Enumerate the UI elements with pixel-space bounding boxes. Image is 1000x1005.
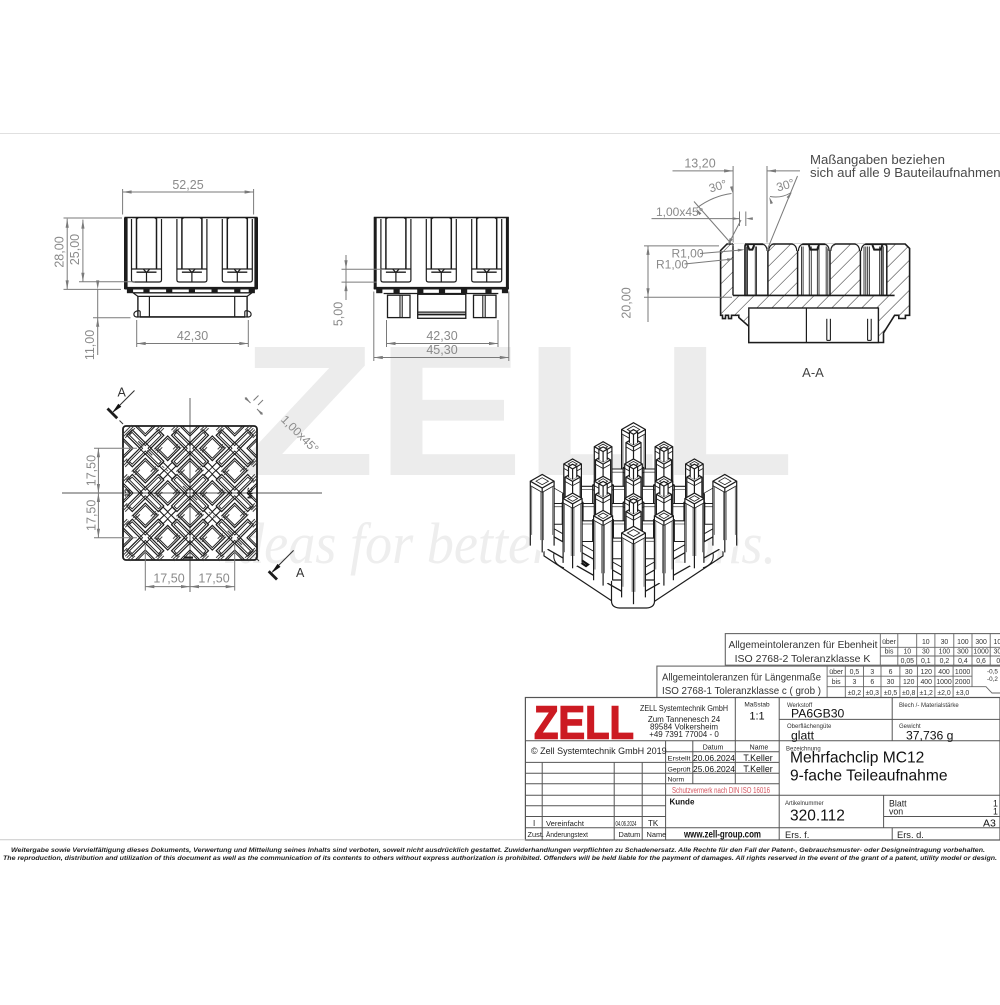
svg-text:30: 30 xyxy=(905,669,913,676)
svg-text:A3: A3 xyxy=(983,817,996,829)
svg-text:10: 10 xyxy=(922,639,930,646)
svg-text:A-A: A-A xyxy=(802,365,824,380)
svg-text:Schutzvermerk nach DIN ISO 160: Schutzvermerk nach DIN ISO 16016 xyxy=(672,786,770,795)
svg-text:+49 7391 77004 - 0: +49 7391 77004 - 0 xyxy=(649,730,719,739)
svg-text:400: 400 xyxy=(920,679,932,686)
svg-text:sich auf alle 9 Bauteilaufnahm: sich auf alle 9 Bauteilaufnahmen xyxy=(810,165,1000,180)
svg-text:±3,0: ±3,0 xyxy=(956,690,970,697)
svg-text:2000: 2000 xyxy=(955,679,970,686)
svg-text:0,05: 0,05 xyxy=(901,658,915,665)
svg-text:±0,5: ±0,5 xyxy=(884,690,898,697)
svg-text:11,00: 11,00 xyxy=(83,330,97,360)
svg-text:Weitergabe sowie Vervielfältig: Weitergabe sowie Vervielfältigung dieses… xyxy=(11,847,985,854)
svg-text:ISO 2768-2 Toleranzklasse K: ISO 2768-2 Toleranzklasse K xyxy=(735,653,871,665)
svg-text:30: 30 xyxy=(887,679,895,686)
svg-text:17,50: 17,50 xyxy=(153,572,184,586)
svg-text:Erstellt: Erstellt xyxy=(668,755,691,762)
svg-text:120: 120 xyxy=(920,669,932,676)
svg-text:5,00: 5,00 xyxy=(332,302,346,326)
svg-text:30: 30 xyxy=(922,649,930,656)
svg-text:25.06.2024: 25.06.2024 xyxy=(693,764,735,774)
svg-text:300: 300 xyxy=(975,639,987,646)
svg-text:Mehrfachclip MC12: Mehrfachclip MC12 xyxy=(790,750,924,767)
svg-text:ZELL Systemtechnik GmbH: ZELL Systemtechnik GmbH xyxy=(640,703,728,713)
svg-text:A: A xyxy=(118,386,127,400)
svg-text:20,00: 20,00 xyxy=(620,287,634,318)
svg-text:320.112: 320.112 xyxy=(790,808,845,825)
svg-text:Geprüft: Geprüft xyxy=(668,766,691,773)
svg-text:www.zell-group.com: www.zell-group.com xyxy=(683,830,761,841)
svg-text:45,30: 45,30 xyxy=(426,343,457,357)
svg-text:42,30: 42,30 xyxy=(426,329,457,343)
svg-text:±0,8: ±0,8 xyxy=(902,690,916,697)
svg-text:±1,2: ±1,2 xyxy=(920,690,934,697)
svg-text:04.06.2024: 04.06.2024 xyxy=(616,819,637,828)
svg-text:ISO 2768-1 Toleranzklasse c (: ISO 2768-1 Toleranzklasse c ( grob ) xyxy=(662,685,821,697)
svg-text:R1,00: R1,00 xyxy=(656,258,688,272)
svg-text:von: von xyxy=(889,806,903,816)
svg-text:MC: MC xyxy=(246,487,255,499)
svg-text:TK: TK xyxy=(648,819,659,828)
svg-text:T.Keller: T.Keller xyxy=(743,764,772,774)
svg-text:ZELL: ZELL xyxy=(534,697,634,749)
svg-text:400: 400 xyxy=(938,669,950,676)
svg-text:1000: 1000 xyxy=(973,649,988,656)
svg-text:0,6: 0,6 xyxy=(976,658,986,665)
svg-text:6: 6 xyxy=(889,669,893,676)
svg-text:120: 120 xyxy=(903,679,915,686)
svg-text:Ers. d.: Ers. d. xyxy=(897,830,924,840)
svg-text:Vereinfacht: Vereinfacht xyxy=(546,819,585,828)
svg-text:3: 3 xyxy=(852,679,856,686)
svg-text:0,4: 0,4 xyxy=(958,658,968,665)
svg-text:52,25: 52,25 xyxy=(172,178,203,192)
svg-text:100: 100 xyxy=(939,649,951,656)
svg-text:Norm: Norm xyxy=(668,777,685,784)
svg-text:0,5: 0,5 xyxy=(850,669,860,676)
svg-text:10: 10 xyxy=(903,649,911,656)
svg-text:1000: 1000 xyxy=(955,669,970,676)
svg-text:28,00: 28,00 xyxy=(53,236,67,267)
svg-text:ZELL: ZELL xyxy=(240,308,795,515)
svg-text:25,00: 25,00 xyxy=(68,234,82,265)
svg-text:PA6GB30: PA6GB30 xyxy=(791,707,845,721)
svg-text:±0,2: ±0,2 xyxy=(848,690,862,697)
svg-text:37,736 g: 37,736 g xyxy=(906,729,953,743)
svg-text:glatt: glatt xyxy=(791,729,815,743)
svg-text:Maßstab: Maßstab xyxy=(744,702,770,709)
svg-text:300: 300 xyxy=(994,649,1000,656)
svg-text:Zust.: Zust. xyxy=(528,830,544,839)
svg-text:Allgemeintoleranzen für Längen: Allgemeintoleranzen für Längenmaße xyxy=(662,672,821,684)
svg-text:-0,2: -0,2 xyxy=(987,676,998,683)
svg-text:17,50: 17,50 xyxy=(85,500,99,531)
svg-text:6: 6 xyxy=(870,679,874,686)
svg-text:Änderungstext: Änderungstext xyxy=(546,830,588,839)
svg-text:Name: Name xyxy=(647,830,667,839)
svg-text:1:1: 1:1 xyxy=(749,711,764,723)
svg-text:I: I xyxy=(533,819,535,828)
svg-text:Name: Name xyxy=(750,744,769,751)
svg-text:20.06.2024: 20.06.2024 xyxy=(693,753,735,763)
svg-text:Kunde: Kunde xyxy=(670,798,695,807)
svg-text:0,: 0, xyxy=(996,658,1000,665)
svg-text:9-fache Teileaufnahme: 9-fache Teileaufnahme xyxy=(790,768,948,785)
svg-text:±0,3: ±0,3 xyxy=(866,690,880,697)
svg-text:Datum: Datum xyxy=(703,744,724,751)
svg-text:Artikelnummer: Artikelnummer xyxy=(785,801,824,807)
svg-text:Datum: Datum xyxy=(619,830,641,839)
svg-text:1000: 1000 xyxy=(936,679,951,686)
svg-text:12: 12 xyxy=(123,489,132,497)
svg-text:über: über xyxy=(882,639,896,646)
svg-text:13,20: 13,20 xyxy=(684,157,715,171)
svg-text:The reproduction, distribution: The reproduction, distribution and utili… xyxy=(3,855,997,862)
svg-text:0,1: 0,1 xyxy=(921,658,931,665)
svg-text:17,50: 17,50 xyxy=(85,455,99,486)
svg-text:© Zell Systemtechnik GmbH 2019: © Zell Systemtechnik GmbH 2019 xyxy=(531,746,667,756)
svg-text:0,2: 0,2 xyxy=(940,658,950,665)
svg-text:1,00x45°: 1,00x45° xyxy=(656,205,704,219)
svg-text:30: 30 xyxy=(941,639,949,646)
svg-text:±2,0: ±2,0 xyxy=(937,690,951,697)
svg-text:300: 300 xyxy=(957,649,969,656)
svg-text:bis: bis xyxy=(832,679,841,686)
svg-text:Allgemeintoleranzen für Ebenhe: Allgemeintoleranzen für Ebenheit xyxy=(729,639,878,651)
svg-text:100: 100 xyxy=(957,639,969,646)
svg-text:A: A xyxy=(296,566,305,580)
svg-text:100: 100 xyxy=(994,639,1000,646)
svg-text:Ers. f.: Ers. f. xyxy=(785,830,809,840)
svg-text:über: über xyxy=(829,669,843,676)
svg-text:17,50: 17,50 xyxy=(198,572,229,586)
svg-text:bis: bis xyxy=(885,649,894,656)
svg-text:-0,5: -0,5 xyxy=(987,669,998,676)
svg-text:3: 3 xyxy=(870,669,874,676)
svg-text:42,30: 42,30 xyxy=(177,329,208,343)
svg-text:1: 1 xyxy=(993,806,998,816)
svg-text:Blech /- Materialstärke: Blech /- Materialstärke xyxy=(899,703,959,709)
svg-text:T.Keller: T.Keller xyxy=(743,753,772,763)
